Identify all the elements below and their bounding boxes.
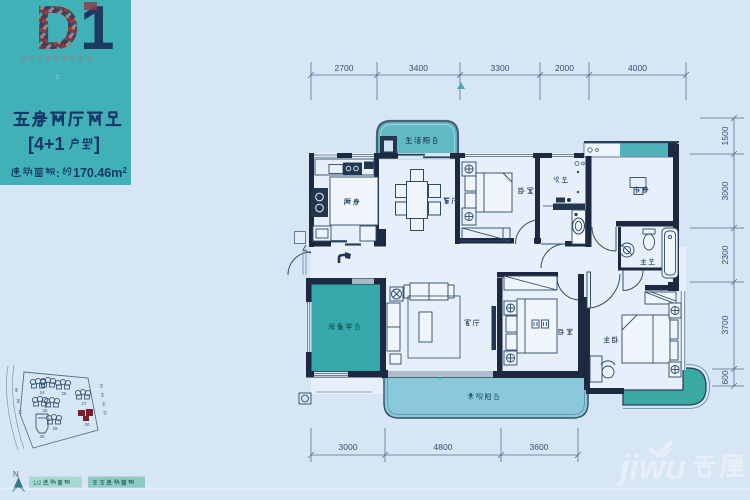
svg-text::: : — [56, 168, 60, 180]
svg-text:170.46m2: 170.46m2 — [73, 166, 127, 180]
svg-text:4800: 4800 — [434, 442, 453, 452]
svg-text:2700: 2700 — [335, 63, 354, 73]
svg-text:4000: 4000 — [628, 63, 647, 73]
svg-text:3700: 3700 — [720, 315, 730, 334]
svg-text:27: 27 — [81, 401, 87, 406]
svg-text:1/2: 1/2 — [33, 481, 42, 487]
svg-text:D: D — [35, 0, 80, 63]
svg-text:2300: 2300 — [720, 245, 730, 264]
svg-text:3000: 3000 — [339, 442, 358, 452]
svg-text:24: 24 — [39, 390, 45, 395]
svg-text:30: 30 — [84, 422, 90, 427]
svg-text:]: ] — [94, 134, 100, 154]
svg-text:[4+1: [4+1 — [28, 134, 65, 154]
svg-text:3000: 3000 — [720, 181, 730, 200]
svg-text:2000: 2000 — [555, 63, 574, 73]
svg-text:3600: 3600 — [530, 442, 549, 452]
svg-text:3400: 3400 — [409, 63, 428, 73]
svg-text:25: 25 — [42, 408, 48, 413]
svg-text:jiwu: jiwu — [616, 449, 686, 487]
svg-text:3300: 3300 — [491, 63, 510, 73]
svg-text:N: N — [13, 470, 19, 479]
svg-text:26: 26 — [61, 391, 67, 396]
svg-text:28: 28 — [39, 434, 45, 439]
svg-text:29: 29 — [52, 426, 58, 431]
svg-text:1500: 1500 — [720, 126, 730, 145]
svg-text:600: 600 — [720, 370, 730, 384]
